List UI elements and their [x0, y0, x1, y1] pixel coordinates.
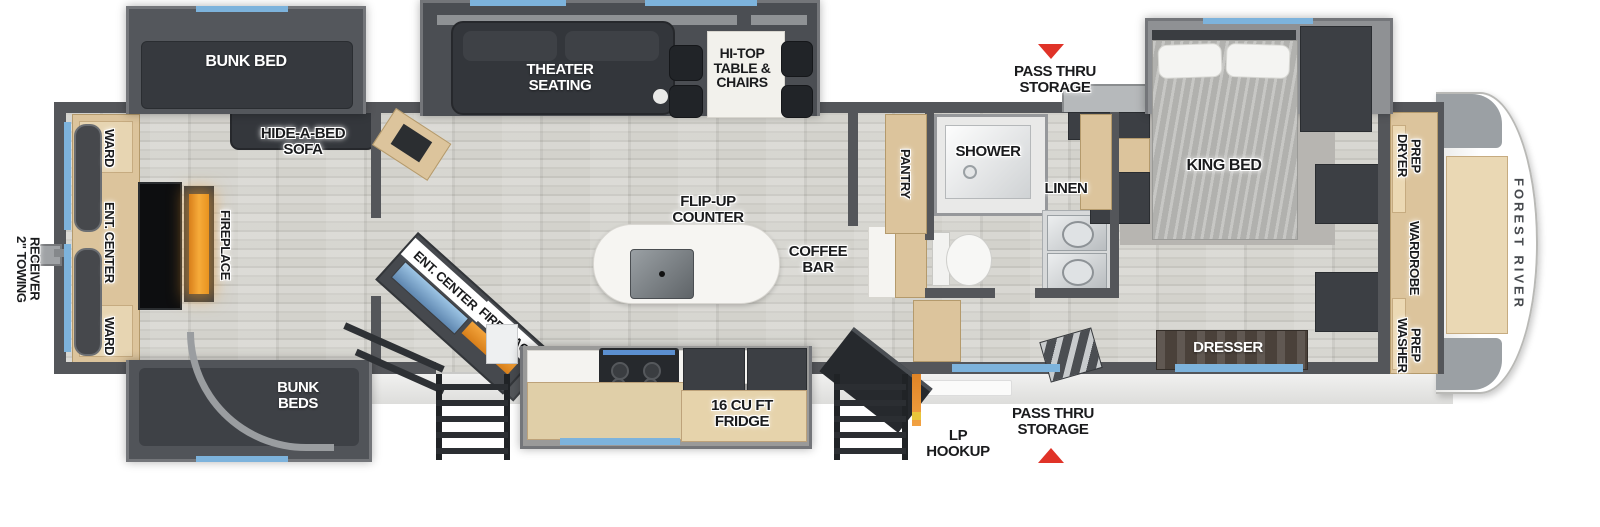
- sofa-cushion-right: [565, 31, 659, 61]
- toilet-bowl: [946, 234, 992, 286]
- brand-label: FOREST RIVER: [1512, 178, 1527, 310]
- pantry-text: PANTRY: [898, 149, 912, 199]
- bedroom-cabinet-right: [1315, 164, 1384, 224]
- hi-top-chair-2: [669, 85, 703, 118]
- dryer-prep-label: DRYER PREP: [1392, 118, 1426, 194]
- sink-bowl-1: [1062, 221, 1094, 248]
- step-rung: [436, 400, 508, 406]
- bunkroom-divider-top: [371, 102, 381, 218]
- hi-top-table-label: HI-TOP TABLE & CHAIRS: [703, 46, 781, 90]
- ward-bottom-text: WARD: [102, 317, 116, 355]
- bath-wall-bottom-b: [1035, 288, 1118, 298]
- rear-window-glass-bottom: [64, 244, 71, 352]
- island-sink: [630, 249, 694, 299]
- shower-label: SHOWER: [943, 144, 1033, 160]
- bunk-bed-mattress: [141, 41, 353, 109]
- brand-label-wrap: FOREST RIVER: [1506, 149, 1532, 339]
- washer-prep-label: WASHER PREP: [1392, 306, 1426, 384]
- step-rung: [436, 384, 508, 390]
- hi-top-chair-4: [781, 85, 813, 118]
- fridge-doors-left: [683, 348, 745, 396]
- ward-top-label: WARD: [100, 117, 118, 179]
- step-rung: [834, 400, 906, 406]
- rear-window-glass-top: [64, 122, 71, 230]
- bath-wall-left: [848, 110, 858, 226]
- step-rung: [436, 416, 508, 422]
- shower: [934, 114, 1048, 216]
- wardrobe-label: WARDROBE: [1405, 210, 1423, 306]
- bunk-beds-label: BUNK BEDS: [270, 380, 326, 412]
- bedroom-tv-stand: [1315, 272, 1384, 332]
- front-cap: FOREST RIVER: [1436, 92, 1538, 394]
- hall-cabinet: [913, 300, 961, 362]
- step-rung: [834, 416, 906, 422]
- ent-center-rear-label: ENT. CENTER: [100, 186, 118, 298]
- sofa-cushion-left: [463, 31, 557, 61]
- slide-shelf-right: [751, 15, 807, 25]
- wardrobe-text: WARDROBE: [1407, 221, 1421, 295]
- step-rung: [436, 448, 508, 454]
- rear-window-bottom: [74, 248, 102, 356]
- dresser-label: DRESSER: [1173, 340, 1283, 356]
- flip-up-counter-label: FLIP-UP COUNTER: [653, 194, 763, 226]
- kitchen-island: [593, 224, 780, 304]
- bottom-window-2: [1175, 364, 1303, 372]
- cap-trim-bottom: [1436, 338, 1502, 390]
- stove-vent: [603, 350, 675, 355]
- bottom-window-1: [952, 364, 1060, 372]
- pass-thru-arrow-up: [1038, 448, 1064, 463]
- pass-thru-top-label: PASS THRU STORAGE: [997, 64, 1113, 96]
- kitchen-lower-cabinets: [527, 382, 687, 440]
- ward-bottom-label: WARD: [100, 305, 118, 367]
- bunk-beds-slide: [126, 360, 372, 462]
- step-rung: [436, 432, 508, 438]
- bunk-beds-window: [196, 456, 288, 462]
- linen-label: LINEN: [1031, 181, 1101, 197]
- bath-wall-bottom-a: [925, 288, 995, 298]
- shower-pan: [945, 125, 1031, 199]
- bunk-slide-window: [196, 6, 288, 12]
- entry-steps-1: [434, 374, 512, 464]
- washer-prep-text: WASHER PREP: [1395, 312, 1422, 378]
- ward-top-text: WARD: [102, 129, 116, 167]
- hi-top-chair-3: [781, 41, 813, 77]
- rear-fireplace-flame: [189, 194, 209, 294]
- dryer-prep-text: DRYER PREP: [1395, 124, 1422, 188]
- fridge-label: 16 CU FT FRIDGE: [696, 398, 788, 430]
- corner-cabinet-opening: [391, 124, 433, 163]
- lp-pipe-band: [912, 412, 921, 420]
- coffee-bar-top: [895, 226, 927, 298]
- towing-receiver-text: 2" TOWING RECEIVER: [14, 217, 41, 321]
- rear-window-top: [74, 124, 102, 232]
- step-rung: [834, 448, 906, 454]
- cap-closet-panel: [1446, 156, 1508, 334]
- coffee-bar-cabinet: [868, 226, 925, 296]
- kitchen-slide-window: [560, 438, 680, 445]
- sink-faucet: [659, 271, 665, 277]
- sofa-cupholder: [653, 89, 668, 104]
- floorplan: ENT. CENTER FIREPLACE: [0, 0, 1600, 527]
- towing-receiver-label: 2" TOWING RECEIVER: [10, 214, 46, 324]
- king-pillow-right: [1225, 43, 1290, 79]
- coffee-bar-front: [868, 226, 896, 298]
- entry-landing: [920, 380, 1012, 396]
- fireplace-rear-label: FIREPLACE: [216, 194, 234, 296]
- pass-thru-bottom-label: PASS THRU STORAGE: [995, 406, 1111, 438]
- hi-top-chair-1: [669, 45, 703, 81]
- cap-trim-top: [1436, 94, 1502, 148]
- sink-bowl-2: [1062, 259, 1094, 286]
- ent-center-rear-text: ENT. CENTER: [102, 202, 116, 283]
- step-rung: [834, 384, 906, 390]
- king-pillow-left: [1157, 43, 1222, 79]
- step-rung: [834, 432, 906, 438]
- theater-window-1: [470, 0, 566, 6]
- king-slide-window: [1203, 18, 1313, 24]
- entry-pillar: [486, 324, 518, 364]
- closet-wall: [1378, 112, 1390, 372]
- lp-hookup-label: LP HOOKUP: [923, 428, 993, 460]
- shower-drain: [963, 165, 977, 179]
- theater-seating-label: THEATER SEATING: [500, 62, 620, 94]
- rear-tv: [138, 182, 182, 310]
- bedroom-wardrobe: [1300, 26, 1372, 132]
- lp-hookup-pipe: [912, 374, 921, 426]
- vanity-sink-2: [1047, 253, 1107, 289]
- pantry-label: PANTRY: [896, 128, 914, 220]
- fireplace-rear-text: FIREPLACE: [218, 210, 232, 280]
- hide-a-bed-sofa-label: HIDE-A-BED SOFA: [244, 126, 362, 158]
- fridge-doors-right: [747, 348, 807, 396]
- king-bed-label: KING BED: [1169, 158, 1279, 175]
- coffee-bar-label: COFFEE BAR: [785, 244, 851, 276]
- entry-steps-2: [832, 374, 910, 464]
- pass-thru-arrow-down: [1038, 44, 1064, 59]
- bunk-bed-label: BUNK BED: [186, 54, 306, 71]
- theater-window-2: [645, 0, 757, 6]
